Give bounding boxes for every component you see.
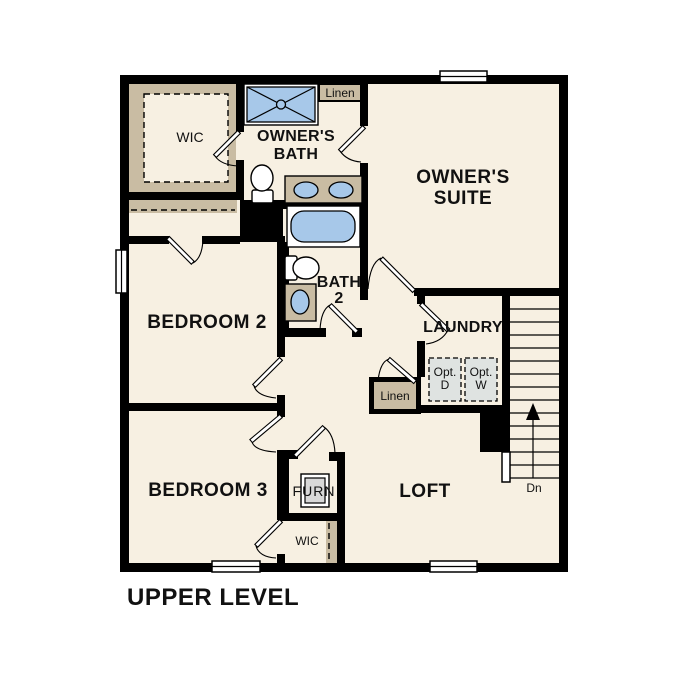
- bath2-label-1: BATH: [317, 274, 361, 291]
- bedroom2-label: BEDROOM 2: [147, 312, 267, 333]
- furnace-label: FURN: [293, 483, 336, 499]
- opt-dryer-label-1: Opt.: [434, 365, 457, 379]
- sink-icon: [291, 290, 309, 314]
- owners-bath-label-1: OWNER'S: [257, 128, 335, 145]
- laundry-label: LAUNDRY: [423, 319, 503, 336]
- linen-hall-label: Linen: [380, 389, 409, 403]
- floor-plan-page: WIC Linen OWNER'S BATH OWNER'S SUITE BED…: [0, 0, 687, 687]
- owners-bath-label-2: BATH: [274, 146, 318, 163]
- stairs-dn-label: Dn: [526, 481, 541, 495]
- toilet-bowl-icon: [251, 165, 273, 191]
- wic-bottom-shelf: [326, 521, 338, 563]
- toilet-tank-icon: [252, 190, 273, 203]
- loft-label: LOFT: [399, 481, 451, 502]
- bathtub-icon: [291, 211, 355, 242]
- opt-washer-label-1: Opt.: [470, 365, 493, 379]
- toilet-bowl-icon: [293, 257, 319, 279]
- owners-suite-label-2: SUITE: [434, 188, 492, 209]
- stair-railing: [502, 452, 510, 482]
- bedroom3-label: BEDROOM 3: [148, 480, 268, 501]
- page-title: UPPER LEVEL: [127, 584, 299, 611]
- sink-icon: [329, 182, 353, 198]
- bath2-label-2: 2: [334, 290, 343, 307]
- opt-dryer-label-2: D: [441, 378, 450, 392]
- wic-top-label: WIC: [176, 129, 203, 145]
- linen-top-label: Linen: [325, 86, 354, 100]
- shower-drain-icon: [277, 100, 286, 109]
- wic-bottom-label: WIC: [295, 534, 319, 548]
- owners-suite-label-1: OWNER'S: [416, 167, 510, 188]
- sink-icon: [294, 182, 318, 198]
- upper-level-floor-plan: WIC Linen OWNER'S BATH OWNER'S SUITE BED…: [0, 0, 687, 687]
- bedroom2-closet-shelf: [129, 200, 237, 213]
- opt-washer-label-2: W: [475, 378, 487, 392]
